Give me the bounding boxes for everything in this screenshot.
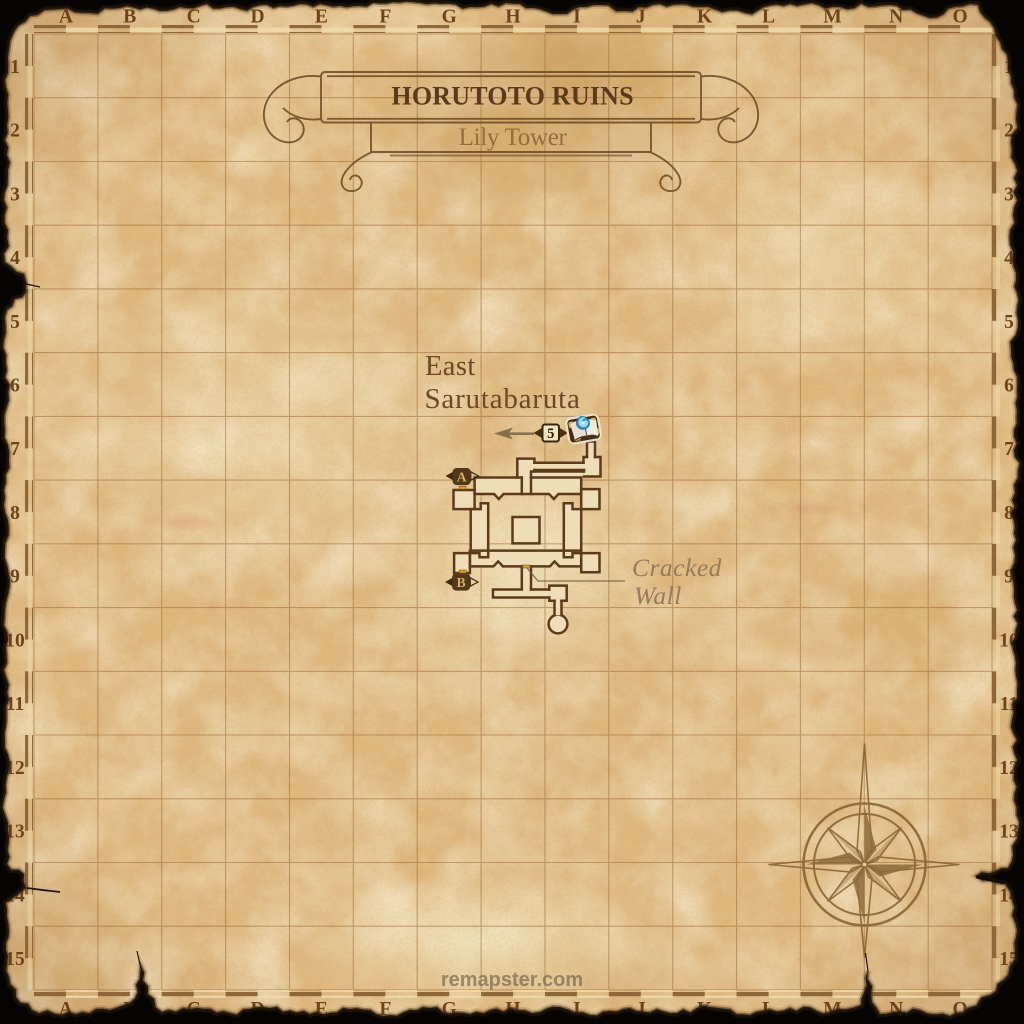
- svg-text:remapster.com: remapster.com: [441, 969, 583, 991]
- svg-text:Wall: Wall: [634, 581, 682, 610]
- svg-text:Cracked: Cracked: [632, 553, 722, 582]
- svg-text:5: 5: [547, 426, 554, 442]
- svg-text:A: A: [457, 470, 467, 485]
- svg-text:6: 6: [1004, 376, 1014, 397]
- svg-text:G: G: [442, 7, 457, 28]
- svg-text:3: 3: [10, 184, 20, 205]
- svg-text:8: 8: [10, 503, 20, 524]
- svg-text:F: F: [379, 7, 391, 28]
- svg-text:5: 5: [1004, 312, 1014, 333]
- svg-text:H: H: [505, 7, 520, 28]
- svg-text:Lily Tower: Lily Tower: [459, 124, 568, 151]
- svg-text:5: 5: [10, 312, 20, 333]
- svg-text:East: East: [425, 351, 476, 382]
- svg-text:2: 2: [10, 121, 20, 142]
- svg-text:E: E: [315, 7, 328, 28]
- svg-text:Sarutabaruta: Sarutabaruta: [425, 383, 581, 415]
- svg-text:B: B: [457, 575, 466, 590]
- svg-text:HORUTOTO RUINS: HORUTOTO RUINS: [391, 82, 633, 111]
